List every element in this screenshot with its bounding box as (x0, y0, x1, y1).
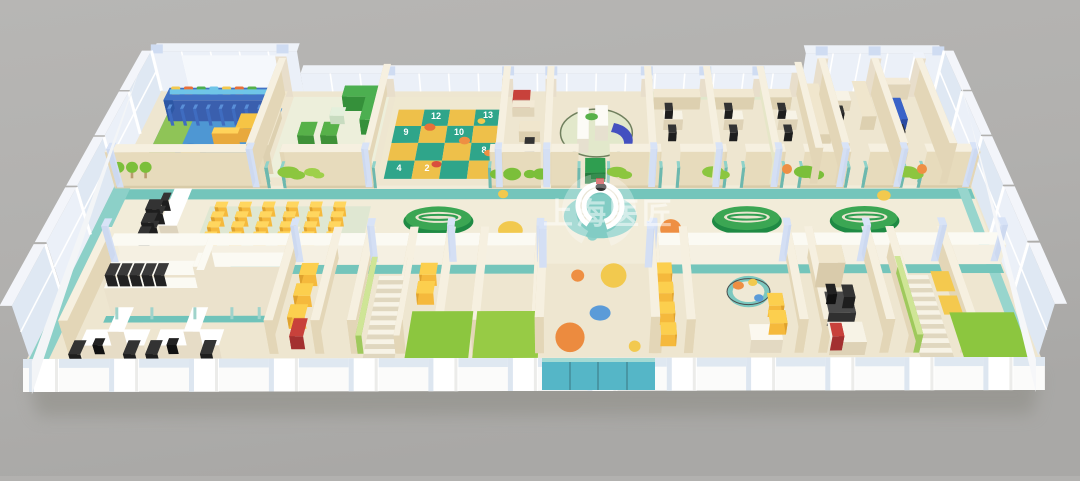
svg-text:12: 12 (431, 111, 441, 121)
svg-text:上海医匠: 上海医匠 (543, 198, 675, 231)
svg-text:4: 4 (396, 163, 401, 173)
svg-text:2: 2 (424, 163, 429, 173)
svg-text:13: 13 (483, 110, 493, 120)
svg-text:9: 9 (403, 127, 408, 137)
svg-text:10: 10 (454, 127, 464, 137)
